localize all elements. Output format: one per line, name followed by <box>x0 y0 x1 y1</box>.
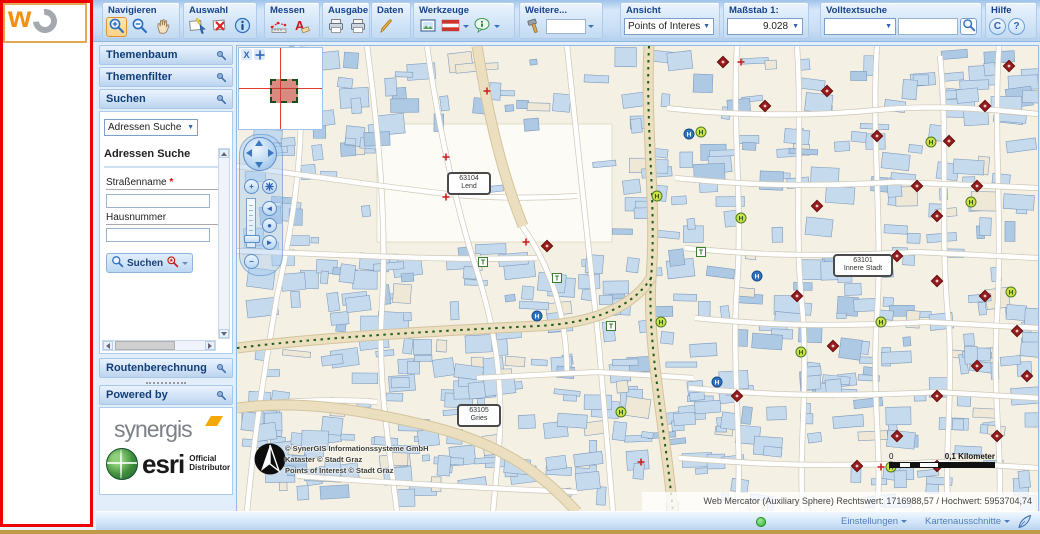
svg-text:T: T <box>555 276 560 283</box>
esri-globe-icon <box>106 448 138 480</box>
esri-subtitle: Official Distributor <box>189 455 230 473</box>
panel-header-suchen[interactable]: Suchen <box>99 89 233 109</box>
svg-text:T: T <box>609 324 614 331</box>
logo-w: w <box>8 3 31 35</box>
toolbar-group-volltextsuche: Volltextsuche ▼ <box>820 2 982 39</box>
sidebar: Themenbaum Themenfilter Suchen Adressen … <box>99 45 233 507</box>
info-circle-icon <box>234 17 251 37</box>
fulltext-category-select[interactable]: ▼ <box>824 18 896 35</box>
panel-title: Powered by <box>100 389 168 401</box>
ansicht-select[interactable]: Points of Interes ▼ <box>624 18 714 35</box>
info-balloon-button[interactable] <box>471 17 492 37</box>
print-advanced-button[interactable] <box>348 17 368 37</box>
measure-distance-icon <box>270 17 288 37</box>
pan-south-icon[interactable] <box>255 162 263 168</box>
pan-compass[interactable] <box>243 137 277 171</box>
pan-west-icon[interactable] <box>246 149 252 157</box>
bottom-statusbar: Einstellungen Kartenausschnitte <box>96 511 1040 531</box>
zoom-out-button[interactable] <box>129 17 150 37</box>
scale-bar: 0 0,1 Kilometer <box>889 452 995 468</box>
pushpin-icon[interactable] <box>216 72 227 83</box>
housenumber-label: Hausnummer <box>106 211 224 225</box>
map-viewport[interactable]: HHHHHHHHHHHHHHHTTTT 63104Lend 63101Inner… <box>236 45 1039 512</box>
toolbar-group-massstab: Maßstab 1: 9.028 ▼ <box>723 2 809 39</box>
zoom-in-step-button[interactable]: + <box>244 179 259 194</box>
pan-east-icon[interactable] <box>268 149 274 157</box>
search-submit-label: Suchen <box>127 258 163 269</box>
select-map-icon <box>188 17 206 37</box>
group-label-ausgabe: Ausgabe <box>323 3 369 16</box>
chevron-down-icon[interactable] <box>588 25 594 31</box>
search-submit-button[interactable]: Suchen <box>106 253 193 273</box>
group-label-hilfe: Hilfe <box>986 3 1036 16</box>
red-search-star-icon <box>166 255 179 271</box>
close-icon[interactable]: X <box>241 49 252 60</box>
scroll-up-button[interactable] <box>219 149 229 158</box>
svg-text:H: H <box>755 273 760 280</box>
scroll-left-button[interactable] <box>103 341 113 350</box>
next-extent-button[interactable]: ► <box>262 235 277 250</box>
balloon-info-icon <box>473 17 491 37</box>
search-icon <box>111 255 124 271</box>
chevron-down-icon[interactable] <box>182 262 188 268</box>
context-help-button[interactable]: C <box>989 18 1006 35</box>
measure-area-icon: A <box>293 17 310 37</box>
scale-bar-graphic <box>889 462 995 468</box>
pan-button[interactable] <box>152 17 173 37</box>
pushpin-icon[interactable] <box>216 363 227 374</box>
printer-icon <box>327 17 345 37</box>
svg-text:H: H <box>619 409 624 416</box>
svg-text:T: T <box>699 250 704 257</box>
group-label-auswahl: Auswahl <box>184 3 256 16</box>
center-map-button[interactable]: ● <box>262 218 277 233</box>
toolbar-group-weitere: Weitere... <box>519 2 603 39</box>
pencil-icon <box>378 17 394 37</box>
overview-extent-box[interactable] <box>270 79 298 103</box>
chevron-down-icon: ▼ <box>703 23 710 30</box>
esri-wordmark: esri <box>142 449 184 480</box>
settings-menu[interactable]: Einstellungen <box>841 516 907 527</box>
search-form-title: Adressen Suche <box>104 148 226 168</box>
chevron-down-icon <box>901 520 907 526</box>
svg-text:H: H <box>687 131 692 138</box>
edit-data-button[interactable] <box>375 17 396 37</box>
map-extents-label: Kartenausschnitte <box>925 516 1001 527</box>
svg-text:H: H <box>659 319 664 326</box>
full-extent-button[interactable] <box>262 179 277 194</box>
panel-title: Themenbaum <box>100 49 178 61</box>
panel-title: Routenberechnung <box>100 362 207 374</box>
scroll-down-button[interactable] <box>219 329 229 338</box>
esri-logo: esri Official Distributor <box>106 448 230 480</box>
pushpin-icon[interactable] <box>216 50 227 61</box>
toolbar-group-daten: Daten <box>371 2 411 39</box>
panel-header-themenbaum[interactable]: Themenbaum <box>99 45 233 65</box>
select-features-button[interactable] <box>187 17 208 37</box>
scale-input[interactable]: 9.028 ▼ <box>727 18 803 35</box>
fulltext-search-input[interactable] <box>898 18 958 35</box>
vertical-scrollbar[interactable] <box>218 148 230 339</box>
powered-by-logos: synergis esri Official Distributor <box>99 407 233 495</box>
svg-text:H: H <box>739 215 744 222</box>
map-copyright: © SynerGIS Informationssysteme GmbH Kata… <box>285 444 428 477</box>
horizontal-scrollbar[interactable] <box>102 340 216 351</box>
synergis-logo: synergis <box>114 416 192 443</box>
tools-hammer-button[interactable] <box>523 17 544 37</box>
austria-flag-button[interactable] <box>440 17 461 37</box>
identify-button[interactable] <box>232 17 253 37</box>
scale-end: 0,1 Kilometer <box>945 452 995 461</box>
svg-text:H: H <box>969 199 974 206</box>
street-input[interactable] <box>106 194 210 208</box>
housenumber-input[interactable] <box>106 228 210 242</box>
panel-header-routenberechnung[interactable]: Routenberechnung <box>99 358 233 378</box>
toolbar-group-navigieren: Navigieren <box>102 2 180 39</box>
toolbar-group-messen: Messen A <box>264 2 320 39</box>
pan-north-icon[interactable] <box>255 140 263 146</box>
weitere-input[interactable] <box>546 19 586 34</box>
toolbar-group-ansicht: Ansicht Points of Interes ▼ <box>620 2 720 39</box>
chevron-down-icon[interactable] <box>463 25 469 31</box>
group-label-massstab: Maßstab 1: <box>724 3 808 16</box>
panel-header-themenfilter[interactable]: Themenfilter <box>99 67 233 87</box>
district-label-lend: 63104Lend <box>447 172 491 195</box>
coordinate-statusbar: Web Mercator (Auxiliary Sphere) Rechtswe… <box>642 492 1038 511</box>
clear-selection-button[interactable] <box>210 17 231 37</box>
svg-text:H: H <box>799 349 804 356</box>
svg-text:H: H <box>715 379 720 386</box>
map-canvas[interactable]: HHHHHHHHHHHHHHHTTTT <box>237 46 1038 512</box>
scale-start: 0 <box>889 452 893 461</box>
group-label-messen: Messen <box>265 3 319 16</box>
zoom-slider[interactable] <box>246 198 256 248</box>
group-label-weitere: Weitere... <box>520 3 602 16</box>
scrollbar-thumb[interactable] <box>115 341 175 350</box>
redline-edit-button[interactable] <box>1016 514 1032 530</box>
svg-text:T: T <box>481 260 486 267</box>
zoom-slider-thumb[interactable] <box>244 235 260 243</box>
group-label-volltextsuche: Volltextsuche <box>821 3 981 16</box>
picture-frame-icon <box>419 17 437 37</box>
scroll-right-button[interactable] <box>205 341 215 350</box>
fulltext-search-button[interactable] <box>960 18 977 35</box>
search-icon <box>962 18 976 35</box>
settings-label: Einstellungen <box>841 516 898 527</box>
svg-text:H: H <box>929 139 934 146</box>
toolbar-group-werkzeuge: Werkzeuge <box>413 2 515 39</box>
street-label: Straßenname * <box>106 176 224 190</box>
map-navigation-control: + ◄ ● ► − <box>239 134 283 276</box>
svg-text:H: H <box>879 319 884 326</box>
search-type-select[interactable]: Adressen Suche ▼ <box>104 119 198 136</box>
required-asterisk: * <box>169 177 173 188</box>
chevron-down-icon: ▼ <box>187 124 194 131</box>
chevron-down-icon: ▼ <box>792 23 799 30</box>
main-toolbar: Navigieren Auswahl Messen A Ausgabe Date… <box>0 0 1040 42</box>
svg-text:H: H <box>1009 289 1014 296</box>
print-button[interactable] <box>326 17 346 37</box>
district-label-innere-stadt: 63101Innere Stadt <box>833 254 893 277</box>
selection-highlight-frame: w <box>0 0 93 527</box>
magnifier-plus-icon <box>108 17 125 37</box>
weboffice-logo: w <box>3 3 87 43</box>
chevron-down-icon[interactable] <box>494 25 500 31</box>
district-label-gries: 63105Gries <box>457 404 501 427</box>
svg-text:H: H <box>535 313 540 320</box>
scale-value: 9.028 <box>763 21 788 32</box>
previous-extent-button[interactable]: ◄ <box>262 201 277 216</box>
austria-flag-icon <box>441 18 460 36</box>
search-panel: Adressen Suche ▼ Adressen Suche Straßenn… <box>99 111 233 354</box>
overview-map[interactable]: X <box>238 47 323 130</box>
toolbar-group-hilfe: Hilfe C ? <box>985 2 1037 39</box>
printer-icon <box>349 17 367 37</box>
synergis-slash-icon <box>205 416 223 426</box>
measure-area-button[interactable]: A <box>291 17 312 37</box>
hammer-icon <box>525 17 542 37</box>
panel-header-powered-by[interactable]: Powered by <box>99 385 233 405</box>
panel-title: Suchen <box>100 93 146 105</box>
north-arrow-icon <box>253 442 287 481</box>
pushpin-icon[interactable] <box>216 390 227 401</box>
logo-o-swoosh <box>28 4 62 38</box>
magnifier-minus-icon <box>131 17 148 37</box>
help-button[interactable]: ? <box>1008 18 1025 35</box>
svg-text:H: H <box>655 193 660 200</box>
map-frame-button[interactable] <box>417 17 438 37</box>
connection-status-icon <box>756 517 766 527</box>
move-icon[interactable] <box>254 49 265 60</box>
zoom-in-button[interactable] <box>106 17 127 37</box>
map-extents-menu[interactable]: Kartenausschnitte <box>925 516 1010 527</box>
group-label-navigieren: Navigieren <box>103 3 179 16</box>
group-label-werkzeuge: Werkzeuge <box>414 3 514 16</box>
group-label-ansicht: Ansicht <box>621 3 719 16</box>
measure-distance-button[interactable] <box>268 17 289 37</box>
pushpin-icon[interactable] <box>216 94 227 105</box>
quill-icon <box>1016 514 1032 530</box>
group-label-daten: Daten <box>372 3 410 16</box>
search-type-value: Adressen Suche <box>108 122 181 133</box>
zoom-out-step-button[interactable]: − <box>244 254 259 269</box>
toolbar-group-auswahl: Auswahl <box>183 2 257 39</box>
chevron-down-icon <box>1004 520 1010 526</box>
bottom-gold-line <box>0 530 1040 534</box>
toolbar-group-ausgabe: Ausgabe <box>322 2 370 39</box>
ansicht-selected-value: Points of Interes <box>628 21 700 32</box>
hand-icon <box>154 17 171 37</box>
chevron-down-icon: ▼ <box>885 23 892 30</box>
clear-selection-icon <box>211 17 229 37</box>
svg-text:H: H <box>699 129 704 136</box>
panel-title: Themenfilter <box>100 71 172 83</box>
